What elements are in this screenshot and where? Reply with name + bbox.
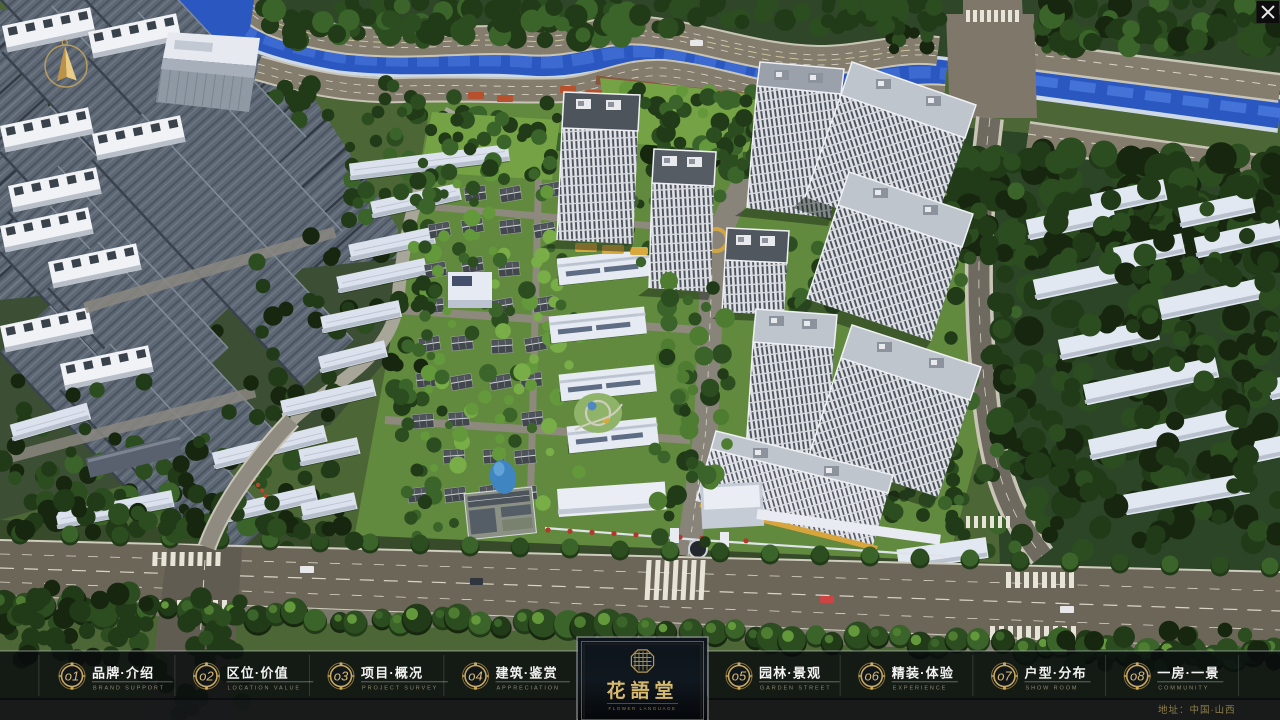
svg-text:o1: o1 <box>65 669 79 684</box>
svg-text:精装·体验: 精装·体验 <box>892 666 954 681</box>
svg-text:区位·价值: 区位·价值 <box>227 666 289 681</box>
svg-text:一房·一景: 一房·一景 <box>1157 666 1219 681</box>
svg-text:o5: o5 <box>732 669 747 684</box>
svg-text:COMMUNITY: COMMUNITY <box>1158 686 1209 692</box>
svg-text:品牌·介绍: 品牌·介绍 <box>92 666 154 681</box>
svg-text:SHOW ROOM: SHOW ROOM <box>1026 686 1079 692</box>
svg-text:APPRECIATION: APPRECIATION <box>497 686 560 692</box>
svg-text:园林·景观: 园林·景观 <box>759 666 821 681</box>
svg-text:建筑·鉴赏: 建筑·鉴赏 <box>496 666 558 681</box>
svg-text:BRAND SUPPORT: BRAND SUPPORT <box>93 686 165 692</box>
svg-text:o6: o6 <box>865 669 880 684</box>
svg-text:GARDEN STREET: GARDEN STREET <box>760 686 831 692</box>
svg-text:户型·分布: 户型·分布 <box>1025 666 1087 681</box>
svg-text:LOCATION VALUE: LOCATION VALUE <box>228 686 301 692</box>
svg-text:EXPERIENCE: EXPERIENCE <box>893 686 947 692</box>
svg-text:o2: o2 <box>199 669 214 684</box>
svg-text:FLOWER LANGUAGE: FLOWER LANGUAGE <box>608 706 676 711</box>
svg-text:PROJECT SURVEY: PROJECT SURVEY <box>362 686 438 692</box>
svg-text:地址：中国·山西: 地址：中国·山西 <box>1158 704 1236 716</box>
svg-text:o4: o4 <box>468 669 482 684</box>
svg-text:o7: o7 <box>997 669 1012 684</box>
svg-text:o8: o8 <box>1130 669 1145 684</box>
svg-text:o3: o3 <box>334 669 349 684</box>
svg-text:项目·概况: 项目·概况 <box>361 666 423 681</box>
svg-text:花語堂: 花語堂 <box>606 679 678 702</box>
